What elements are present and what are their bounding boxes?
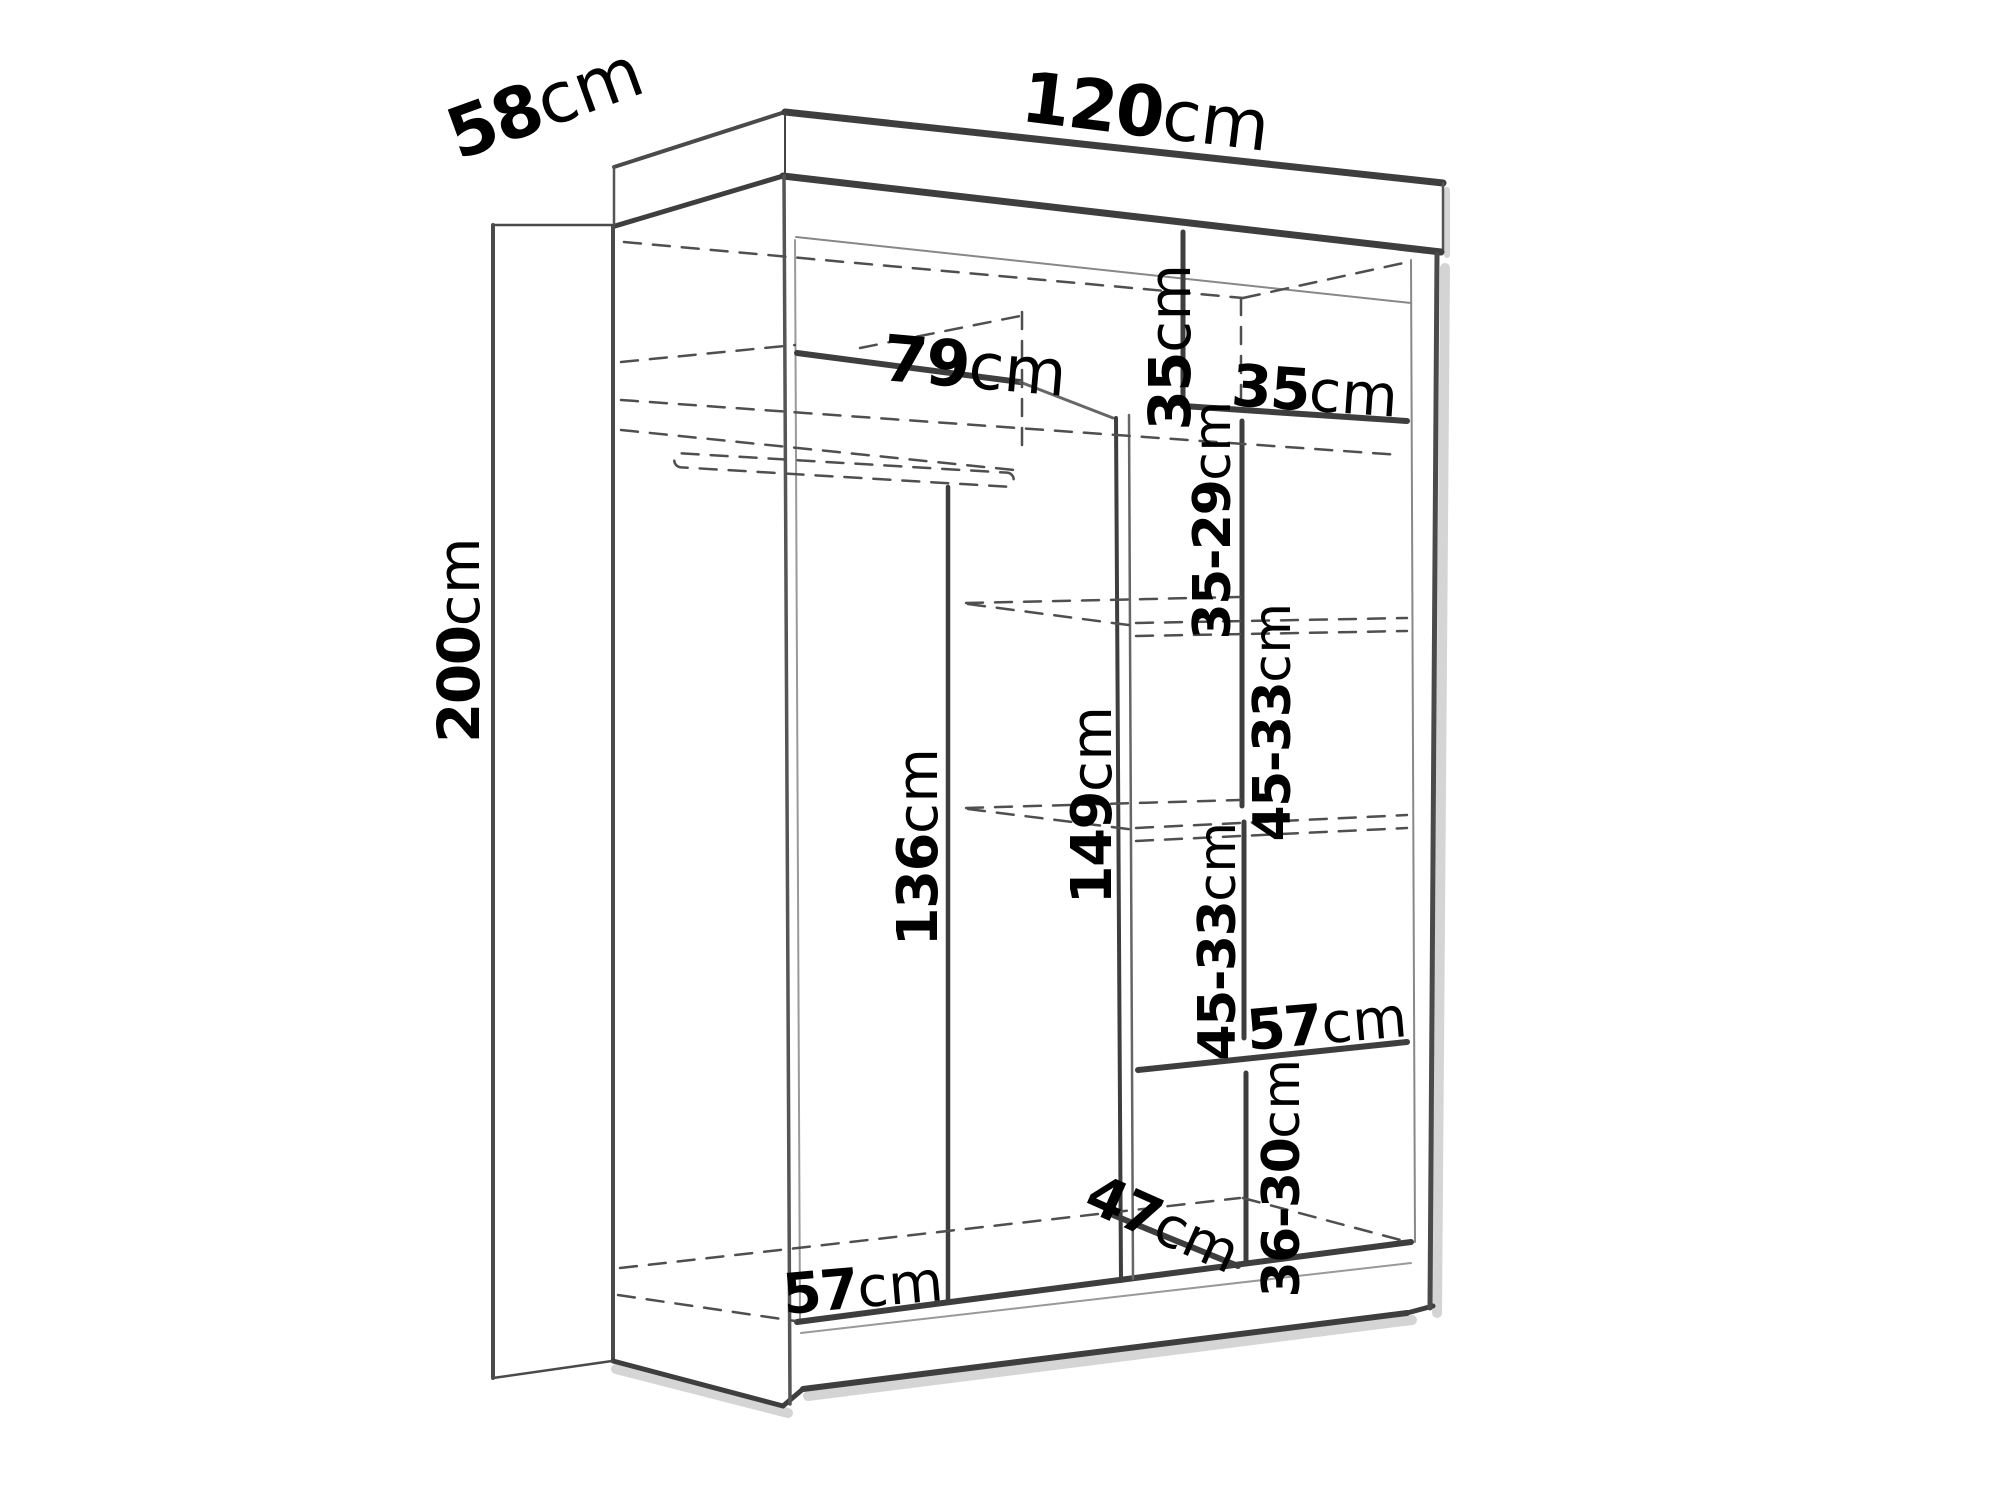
left-foot-step <box>783 1389 803 1406</box>
left-panel-bottom-edge <box>613 1361 783 1406</box>
label-gap-45-33cm-upper: 45-33cm <box>1243 602 1303 841</box>
label-top-shelf-79cm: 79cm <box>880 322 1070 412</box>
label-depth-58cm: 58cm <box>436 30 654 176</box>
label-height-200cm: 200cm <box>425 537 493 743</box>
cornice-top-left-edge <box>614 112 785 167</box>
wardrobe-diagram-page: 58cm 120cm 200cm 79cm 35cm 35cm 35-29cm … <box>0 0 2000 1500</box>
right-inner-edge <box>1411 260 1415 1242</box>
hanging-rail <box>674 453 1014 487</box>
label-gap-36-30cm: 36-30cm <box>1252 1058 1312 1297</box>
label-interior-height-136cm: 136cm <box>886 748 951 947</box>
front-left-edge <box>784 176 790 1404</box>
middle-divider-right <box>1129 415 1133 1279</box>
cornice-bottom-left-edge <box>615 176 783 226</box>
label-gap-45-33cm-lower: 45-33cm <box>1188 821 1248 1060</box>
height-dim-bottom-tick <box>493 1361 612 1378</box>
wardrobe-dimension-diagram: 58cm 120cm 200cm 79cm 35cm 35cm 35-29cm … <box>0 0 2000 1500</box>
label-divider-height-149cm: 149cm <box>1060 706 1125 905</box>
label-floor-width-57cm: 57cm <box>780 1249 946 1328</box>
label-bottom-depth-47cm: 47cm <box>1076 1162 1250 1287</box>
top-front-edge <box>796 237 1411 303</box>
label-niche-width-35cm: 35cm <box>1229 351 1400 430</box>
plinth-bottom-edge <box>803 1313 1407 1389</box>
cornice-bottom-front-edge <box>783 176 1441 252</box>
label-gap-35-29cm: 35-29cm <box>1183 400 1243 639</box>
front-left-inner-edge <box>795 240 800 1322</box>
height-dimension-line <box>493 225 612 1378</box>
label-width-120cm: 120cm <box>1017 56 1274 168</box>
label-right-shelf-57cm: 57cm <box>1244 985 1410 1064</box>
